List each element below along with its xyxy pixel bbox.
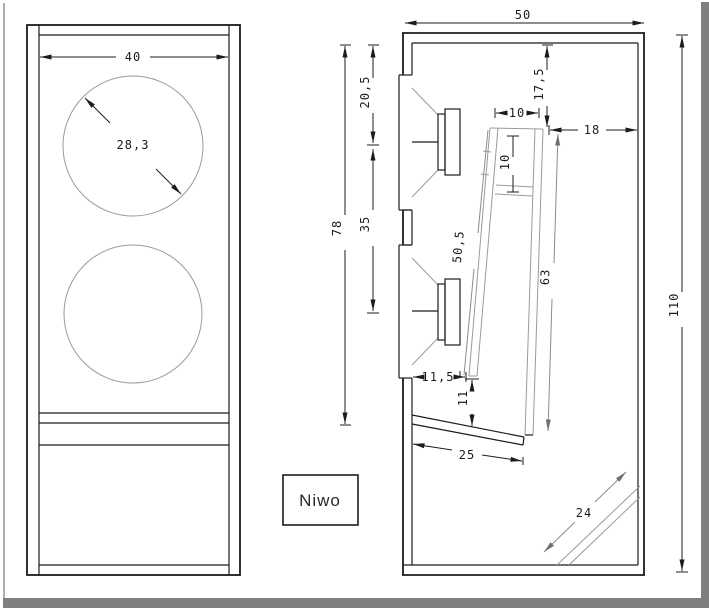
corner-port: [557, 486, 640, 565]
dim-11-label: 11: [456, 390, 470, 406]
title-label-box: Niwo: [283, 475, 358, 525]
dim-10-inner: 10: [498, 136, 519, 192]
dim-110: 110: [667, 35, 688, 572]
woofer-circle-bottom: [64, 245, 202, 383]
dim-17-5-label: 17,5: [532, 68, 546, 101]
speaker-blueprint: 40 28,3 Niwo: [0, 0, 709, 608]
dim-24-label: 24: [576, 506, 592, 520]
dim-24: 24: [544, 472, 626, 552]
side-view: 50 78 20,5 35 17,5: [330, 8, 688, 575]
driver-bottom: [399, 245, 460, 378]
dim-110-label: 110: [667, 293, 681, 318]
dim-11: 11: [456, 379, 479, 426]
woofer-diameter-label: 28,3: [117, 138, 150, 152]
front-view: 40 28,3: [27, 25, 240, 575]
dim-35-label: 35: [358, 216, 372, 232]
driver-bottom-magnet-inner: [438, 284, 445, 340]
dim-35: 35: [358, 149, 379, 313]
front-width-label: 40: [125, 50, 141, 64]
dim-63: 63: [538, 134, 558, 431]
dim-63-label: 63: [538, 268, 553, 285]
dim-11-5-label: 11,5: [422, 370, 455, 384]
dim-78: 78: [330, 45, 351, 425]
driver-top-magnet-inner: [438, 114, 445, 170]
dim-10-top-label: 10: [509, 106, 525, 120]
dim-10-inner-label: 10: [498, 154, 512, 170]
dim-25: 25: [412, 440, 523, 465]
depth-label: 50: [515, 8, 531, 22]
dim-17-5: 17,5: [532, 45, 553, 127]
dim-78-label: 78: [330, 220, 344, 236]
blueprint-page: 40 28,3 Niwo: [0, 0, 709, 608]
dim-10-top: 10: [495, 106, 539, 120]
driver-top-magnet: [445, 109, 460, 175]
dim-25-label: 25: [459, 448, 475, 462]
dim-depth-50: 50: [405, 8, 644, 23]
dim-18-label: 18: [584, 123, 600, 137]
dim-woofer-diameter: 28,3: [85, 98, 181, 194]
dim-18: 18: [549, 123, 637, 137]
dim-11-5: 11,5: [413, 370, 466, 384]
dim-50-5: 50,5: [450, 130, 488, 375]
dim-front-width: 40: [40, 50, 228, 64]
dim-50-5-label: 50,5: [450, 230, 467, 264]
dim-20-5: 20,5: [358, 45, 379, 145]
front-view-outline: [27, 25, 240, 575]
title-label: Niwo: [299, 491, 341, 510]
driver-bottom-magnet: [445, 279, 460, 345]
shelf-board: [412, 415, 524, 445]
port-channel: [469, 128, 543, 435]
dim-20-5-label: 20,5: [358, 76, 372, 109]
driver-top: [399, 75, 460, 210]
